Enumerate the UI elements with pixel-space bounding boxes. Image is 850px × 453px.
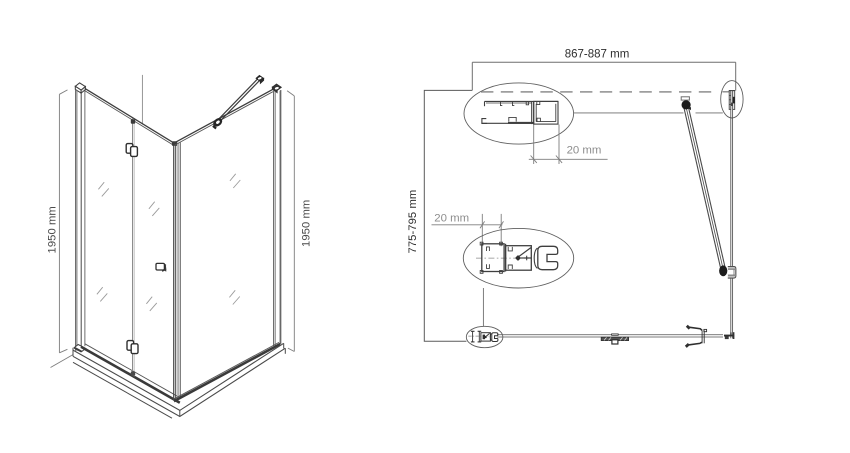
svg-text:775-795 mm: 775-795 mm: [407, 190, 419, 254]
svg-text:1950 mm: 1950 mm: [301, 200, 313, 247]
svg-text:1950 mm: 1950 mm: [47, 206, 59, 253]
svg-text:20 mm: 20 mm: [567, 144, 602, 156]
svg-text:20 mm: 20 mm: [434, 213, 469, 225]
svg-text:867-887 mm: 867-887 mm: [565, 48, 630, 60]
